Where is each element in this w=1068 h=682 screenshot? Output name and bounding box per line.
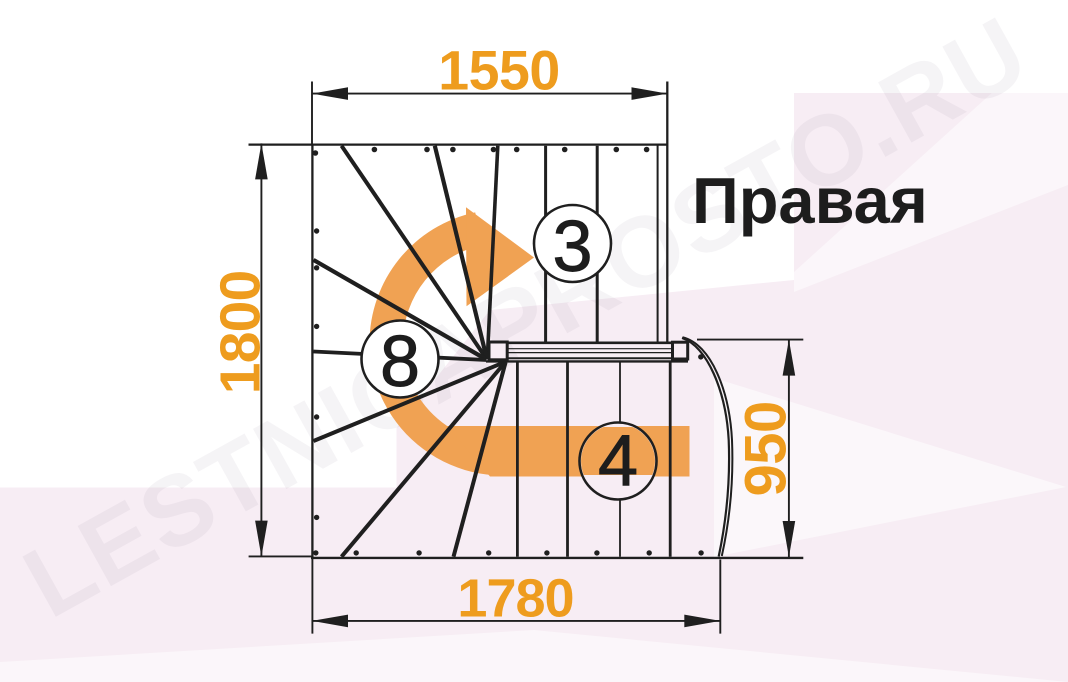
svg-text:Правая: Правая [692,164,928,237]
svg-text:8: 8 [380,322,420,402]
svg-text:950: 950 [734,401,799,496]
svg-text:1780: 1780 [457,569,573,629]
svg-text:1800: 1800 [209,271,273,395]
svg-text:1550: 1550 [438,40,559,102]
svg-text:3: 3 [552,207,592,287]
svg-text:4: 4 [598,422,638,502]
